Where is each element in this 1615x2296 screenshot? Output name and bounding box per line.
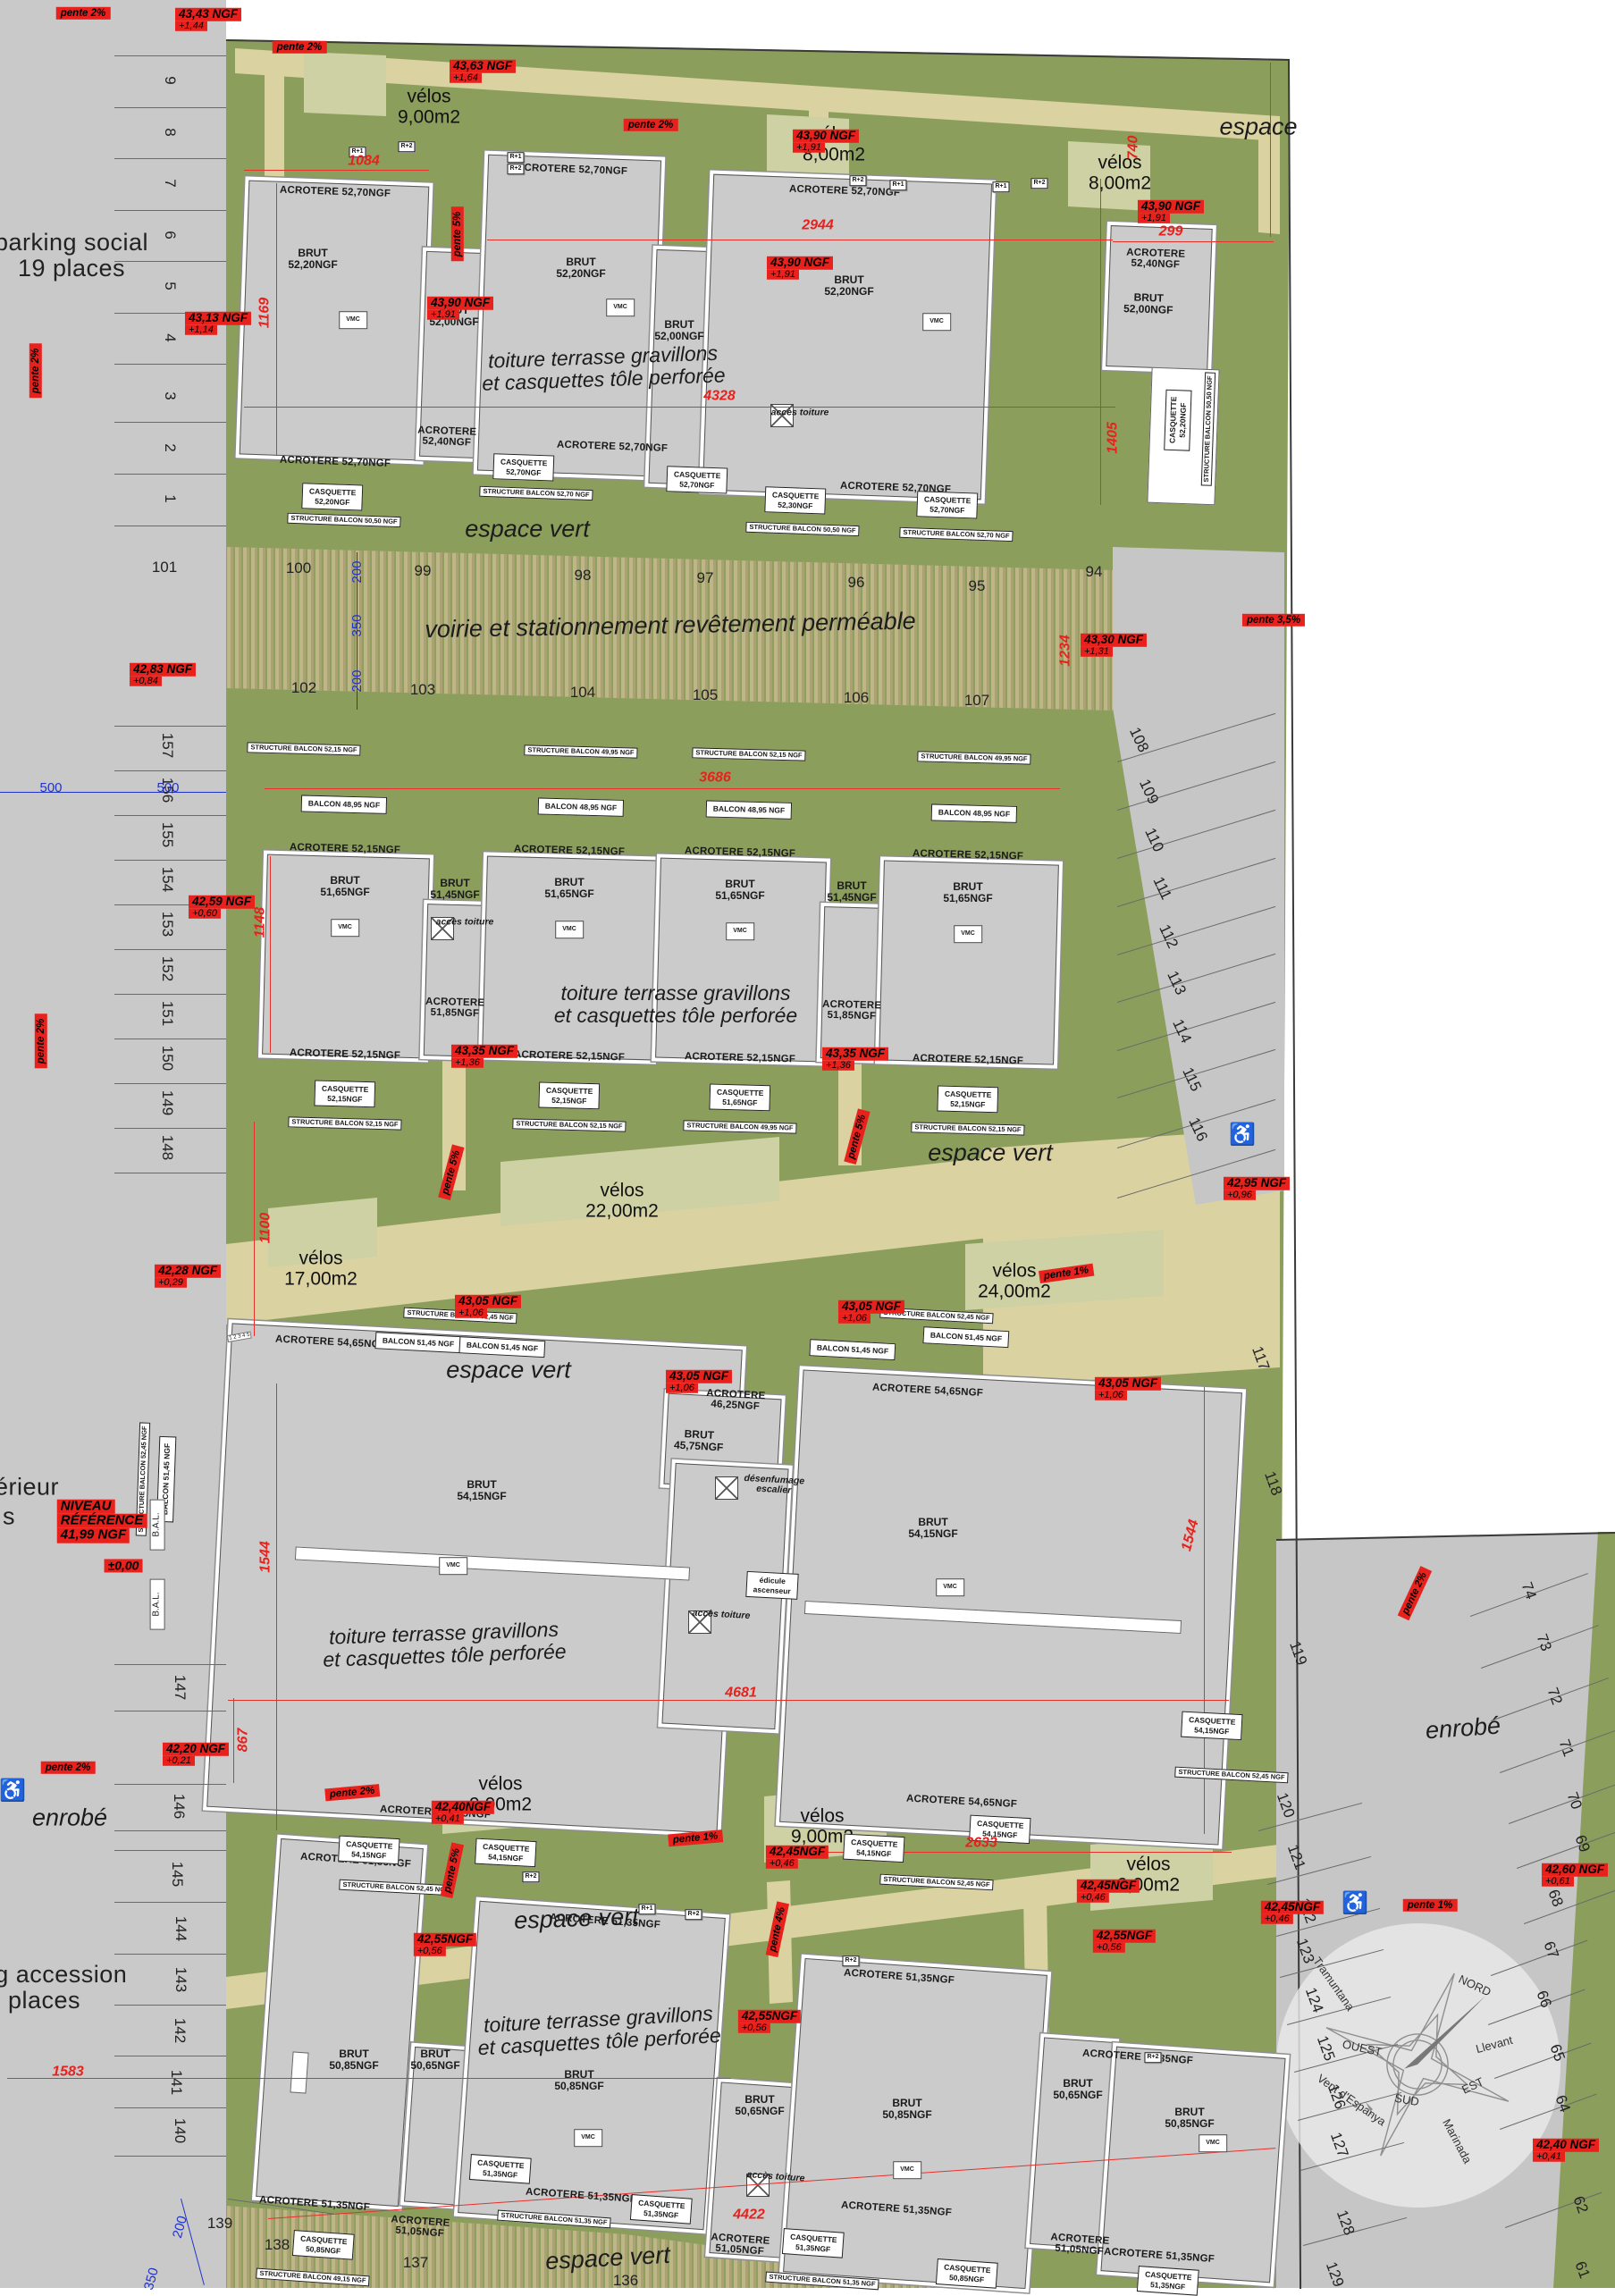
red-dimension-line	[254, 1122, 255, 1336]
parking-stall-number: 142	[172, 2018, 188, 2043]
blue-dimension-500: 500	[156, 781, 179, 795]
elevation-flag-42-40ngf: 42,40NGF+0,41	[432, 1801, 494, 1824]
parking-stall-number: 98	[575, 568, 592, 584]
brut-brut-54-15ngf: BRUT54,15NGF	[457, 1479, 506, 1502]
elevation-flag-42-45ngf: 42,45NGF+0,46	[766, 1846, 829, 1869]
wheelchair-icon: ♿	[1342, 1892, 1368, 1915]
parking-stall-number: 152	[159, 956, 175, 981]
slope-label: pente 2%	[273, 41, 327, 54]
parking-stall-number: 5	[162, 282, 178, 290]
red-dimension-line	[487, 240, 1113, 240]
red-dimension-line	[270, 856, 271, 1053]
stall-divider-line	[114, 815, 226, 816]
stall-divider-line	[114, 2005, 226, 2006]
parking-stall-number: 144	[172, 1916, 189, 1941]
wheelchair-icon: ♿	[0, 1779, 26, 1803]
elevation-flag-42-40-ngf: 42,40 NGF+0,41	[1533, 2139, 1599, 2162]
velo-v-los-8-00m2: vélos8,00m2	[1089, 153, 1151, 193]
parking-stall-number: 104	[570, 685, 595, 701]
brut-brut-54-15ngf: BRUT54,15NGF	[908, 1517, 957, 1540]
blue-dimension-200: 200	[350, 669, 365, 692]
parking-stall-number: 7	[162, 179, 178, 187]
building	[702, 174, 992, 500]
building	[1030, 2037, 1115, 2249]
elevation-flag-42-55ngf: 42,55NGF+0,56	[414, 1933, 476, 1956]
red-dimension-line	[276, 183, 277, 456]
stall-divider-line	[114, 364, 226, 365]
parking-stall-number: 148	[159, 1135, 175, 1160]
elevation-flag-43-35-ngf: 43,35 NGF+1,36	[451, 1045, 517, 1068]
badge-r-2: R+2	[522, 1871, 539, 1882]
red-dimension-line	[265, 788, 1060, 789]
box-casquette-52-20ngf: CASQUETTE52,20NGF	[1164, 389, 1192, 450]
blue-dimension-200: 200	[350, 560, 365, 583]
box-casquette-52-15ngf: CASQUETTE52,15NGF	[937, 1085, 998, 1113]
brut-brut-50-85ngf: BRUT50,85NGF	[554, 2069, 603, 2092]
it-espace-vert: espace vert	[446, 1357, 571, 1383]
slope-label: pente 2%	[624, 119, 678, 131]
toit-toiture-terrasse-gravillons-: toiture terrasse gravillonset casquettes…	[554, 982, 797, 1027]
brut-brut-51-45ngf: BRUT51,45NGF	[430, 878, 479, 901]
big-parking-social-19-places: parking social19 places	[0, 230, 148, 282]
red-dimension-1234: 1234	[1057, 635, 1072, 667]
vmc-vmc: VMC	[439, 1557, 467, 1575]
red-dimension-line	[1113, 241, 1274, 242]
parking-stall-number: 94	[1086, 564, 1103, 580]
stall-divider-line	[114, 526, 226, 526]
stall-divider-line	[114, 1784, 226, 1785]
plan-canvas: parking social19 placesparking accession…	[0, 0, 1615, 2288]
red-dimension-line	[1270, 63, 1271, 237]
acro-acrotere-51-05ngf: ACROTERE51,05NGF	[1049, 2232, 1110, 2258]
building	[820, 906, 885, 1060]
box-casquette-54-15ngf: CASQUETTE54,15NGF	[338, 1836, 400, 1865]
stall-divider-line	[114, 422, 226, 423]
brut-brut-50-65ngf: BRUT50,65NGF	[410, 2048, 459, 2072]
brut-brut-50-65ngf: BRUT50,65NGF	[1053, 2078, 1102, 2101]
vmc-vmc: VMC	[606, 299, 635, 316]
elevation-flag-43-90-ngf: 43,90 NGF+1,91	[1138, 200, 1204, 223]
slope-label: pente 1%	[1403, 1899, 1458, 1912]
site-plan-screenshot: { "plan": {"type": "architectural site p…	[0, 0, 1615, 2288]
parking-stall-number: 147	[172, 1675, 188, 1700]
acro-acrotere-52-40ngf: ACROTERE52,40NGF	[417, 425, 477, 449]
box-casquette-52-30ngf: CASQUETTE52,30NGF	[764, 486, 826, 515]
box-casquette-54-15ngf: CASQUETTE54,15NGF	[1181, 1711, 1243, 1741]
box-balcon-48-95-ngf: BALCON 48,95 NGF	[538, 797, 625, 816]
badge-r-2: R+2	[398, 141, 415, 152]
badge-r-2: R+2	[849, 175, 866, 186]
parking-stall-number: 136	[613, 2273, 638, 2289]
brut-brut-50-65ngf: BRUT50,65NGF	[735, 2094, 784, 2117]
parking-stall-number: 140	[172, 2118, 188, 2143]
brut-brut-51-65ngf: BRUT51,65NGF	[544, 877, 593, 900]
vmc-vmc: VMC	[574, 2129, 602, 2147]
badge-r-2: R+2	[842, 1955, 859, 1966]
red-dimension-line	[7, 2078, 731, 2079]
parking-stall-number: 2	[162, 443, 178, 451]
stall-divider-line	[114, 770, 226, 771]
brut-brut-52-20ngf: BRUT52,20NGF	[556, 257, 605, 280]
stall-divider-line	[114, 1711, 226, 1711]
parking-stall-number: 102	[291, 680, 316, 696]
badge-r-1: R+1	[992, 181, 1009, 192]
red-dimension-line	[1100, 179, 1101, 505]
badge-r-1: R+1	[507, 152, 524, 163]
sm-acc-s-toiture: accès toiture	[436, 917, 494, 927]
box-casquette-52-70ngf: CASQUETTE52,70NGF	[666, 466, 728, 494]
box-casquette-52-70ngf: CASQUETTE52,70NGF	[492, 453, 554, 482]
bal-b-a-l: B.A.L.	[150, 1499, 165, 1550]
red-dimension-1405: 1405	[1105, 422, 1120, 454]
big-parking-accession-35-places: parking accession35 places	[0, 1962, 127, 2014]
parking-stall-number: 153	[159, 912, 175, 937]
vmc-vmc: VMC	[893, 2161, 921, 2179]
elevation-flag-42-83-ngf: 42,83 NGF+0,84	[130, 663, 196, 686]
stall-divider-line	[114, 860, 226, 861]
parking-stall-number: 1	[162, 494, 178, 502]
brut-brut-51-65ngf: BRUT51,65NGF	[715, 879, 764, 902]
parking-stall-number: 9	[162, 76, 178, 84]
slope-label: pente 2%	[29, 344, 42, 399]
elevation-flag-42-55ngf: 42,55NGF+0,56	[738, 2010, 801, 2033]
sm-d-senfumage-escalier: désenfumageescalier	[744, 1474, 805, 1497]
box-casquette-51-35ngf: CASQUETTE51,35NGF	[782, 2228, 845, 2258]
red-dimension-2944: 2944	[802, 217, 834, 232]
parking-stall-number: 103	[410, 682, 435, 698]
stall-divider-line	[114, 474, 226, 475]
stall-divider-line	[114, 1039, 226, 1039]
box-casquette-50-85ngf: CASQUETTE50,85NGF	[936, 2258, 998, 2289]
parking-stall-number: 95	[969, 578, 986, 594]
parking-stall-number: 99	[415, 563, 432, 579]
elevation-flag-43-90-ngf: 43,90 NGF+1,91	[427, 297, 493, 320]
roof-hatch-icon	[715, 1476, 738, 1500]
parking-stall-number: 3	[162, 391, 178, 399]
parking-stall-number: 105	[693, 687, 718, 703]
red-dimension-line	[1204, 1387, 1205, 1834]
acro-acrotere-52-40ngf: ACROTERE52,40NGF	[1126, 247, 1186, 271]
building	[256, 1838, 424, 2207]
badge-r-2: R+2	[1144, 2052, 1161, 2063]
parking-stall-number: 143	[172, 1967, 189, 1992]
stall-divider-line	[114, 1128, 226, 1129]
stall-divider-line	[114, 994, 226, 995]
stall-divider-line	[114, 2156, 226, 2157]
parking-stall-number: 97	[697, 570, 714, 586]
vmc-vmc: VMC	[555, 921, 584, 938]
badge-r-2: R+2	[507, 164, 524, 174]
red-dimension-4422: 4422	[733, 2207, 765, 2222]
parking-stall-number: 96	[848, 575, 865, 591]
velo-v-los-22-00m2: vélos22,00m2	[585, 1181, 659, 1221]
velo-v-los-9-00m2: vélos9,00m2	[398, 87, 460, 127]
parking-stall-number: 154	[159, 867, 175, 892]
box-balcon-48-95-ngf: BALCON 48,95 NGF	[706, 800, 793, 819]
parking-stall-number: 139	[207, 2216, 232, 2232]
box-casquette-51-35ngf: CASQUETTE51,35NGF	[469, 2154, 532, 2184]
blue-dimension-350: 350	[350, 614, 365, 636]
stall-divider-line	[114, 55, 226, 56]
badge-r-1: R+1	[889, 180, 906, 190]
red-dimension-2633: 2633	[965, 1835, 997, 1850]
red-dimension-1169: 1169	[257, 298, 272, 328]
it-espace: espace	[1219, 114, 1297, 139]
parking-stall-number: 157	[159, 733, 175, 758]
badge-r-2: R+2	[685, 1909, 702, 1920]
brut-brut-52-00ngf: BRUT52,00NGF	[654, 319, 703, 342]
brut-brut-51-65ngf: BRUT51,65NGF	[320, 875, 369, 898]
acro-acrotere-51-05ngf: ACROTERE51,05NGF	[710, 2232, 770, 2258]
stall-divider-line	[114, 1173, 226, 1173]
parking-stall-number: 4	[162, 333, 178, 341]
vmc-vmc: VMC	[922, 313, 951, 331]
stall-divider-line	[114, 1083, 226, 1084]
box-casquette-54-15ngf: CASQUETTE54,15NGF	[843, 1834, 905, 1863]
parking-stall-number: 137	[403, 2255, 428, 2271]
elevation-flag-42-95-ngf: 42,95 NGF+0,96	[1224, 1177, 1290, 1200]
elevation-flag-43-05-ngf: 43,05 NGF+1,06	[666, 1370, 732, 1393]
red-dimension-740: 740	[1125, 136, 1140, 160]
red-dimension-line	[244, 170, 429, 171]
elevation-flag-42-45ngf: 42,45NGF+0,46	[1261, 1901, 1324, 1924]
box-casquette-52-15ngf: CASQUETTE52,15NGF	[314, 1080, 375, 1107]
parking-stall-number: 6	[162, 231, 178, 239]
box-casquette-54-15ngf: CASQUETTE54,15NGF	[475, 1838, 537, 1868]
elevation-flag-43-90-ngf: 43,90 NGF+1,91	[767, 257, 833, 280]
badge-r-2: R+2	[1030, 178, 1047, 189]
vmc-vmc: VMC	[726, 922, 754, 940]
box-casquette-51-35ngf: CASQUETTE51,35NGF	[1137, 2266, 1199, 2296]
parking-stall-number: 8	[162, 128, 178, 136]
box-dicule-ascenseur: édiculeascenseur	[745, 1571, 799, 1600]
elevation-flag-42-45ngf: 42,45NGF+0,46	[1077, 1880, 1140, 1903]
elevation-flag-43-05-ngf: 43,05 NGF+1,06	[838, 1300, 904, 1324]
brut-brut-51-65ngf: BRUT51,65NGF	[943, 881, 992, 904]
elevation-flag-42-60-ngf: 42,60 NGF+0,61	[1542, 1863, 1608, 1887]
box-casquette-51-35ngf: CASQUETTE51,35NGF	[630, 2194, 693, 2225]
stall-divider-line	[114, 2056, 226, 2056]
stall-divider-line	[114, 210, 226, 211]
elevation-flag-43-13-ngf: 43,13 NGF+1,14	[185, 312, 251, 335]
parking-stall-number: 145	[169, 1862, 185, 1887]
slope-label: pente 2%	[41, 1762, 96, 1774]
parking-stall-number: 138	[265, 2237, 290, 2253]
reference-zero-flag: ±0,00	[105, 1559, 143, 1572]
toit-toiture-terrasse-gravillons-: toiture terrasse gravillonset casquettes…	[322, 1618, 567, 1670]
red-dimension-1544: 1544	[257, 1541, 273, 1573]
big-rieur: érieur	[0, 1474, 59, 1500]
red-dimension-1084: 1084	[348, 153, 380, 168]
vmc-vmc: VMC	[936, 1578, 964, 1596]
acro-acrotere-51-85ngf: ACROTERE51,85NGF	[822, 999, 882, 1023]
box-balcon-48-95-ngf: BALCON 48,95 NGF	[931, 803, 1018, 822]
box-casquette-52-15ngf: CASQUETTE52,15NGF	[538, 1081, 600, 1109]
sm-acc-s-toiture: accès toiture	[771, 408, 829, 417]
vmc-vmc: VMC	[339, 311, 367, 329]
reference-level-flag: NIVEAURÉFÉRENCE41,99 NGF	[57, 1500, 147, 1543]
big-s: s	[3, 1503, 15, 1529]
elevation-flag-42-28-ngf: 42,28 NGF+0,29	[155, 1265, 221, 1288]
velo-v-los-17-00m2: vélos17,00m2	[284, 1249, 357, 1289]
parking-stall-number: 100	[286, 560, 311, 576]
stall-divider-line	[114, 949, 226, 950]
stall-divider-line	[114, 726, 226, 727]
roof-duct	[290, 2051, 308, 2093]
stall-divider-line	[114, 1664, 226, 1665]
red-dimension-3686: 3686	[699, 770, 731, 785]
red-dimension-4328: 4328	[703, 388, 736, 403]
stall-divider-line	[114, 1850, 226, 1851]
it-espace-vert: espace vert	[928, 1140, 1053, 1165]
vmc-vmc: VMC	[1199, 2134, 1227, 2152]
brut-brut-52-20ngf: BRUT52,20NGF	[288, 248, 337, 271]
parking-stall-number: 146	[171, 1794, 187, 1819]
red-dimension-1100: 1100	[257, 1213, 273, 1243]
red-dimension-1148: 1148	[252, 907, 267, 938]
it-enrob: enrobé	[1425, 1713, 1501, 1745]
box-casquette-51-65ngf: CASQUETTE51,65NGF	[709, 1083, 770, 1111]
brut-brut-52-00ngf: BRUT52,00NGF	[1123, 291, 1173, 316]
elevation-flag-43-30-ngf: 43,30 NGF+1,31	[1081, 634, 1147, 657]
brut-brut-51-45ngf: BRUT51,45NGF	[827, 880, 876, 904]
slope-label: pente 5%	[451, 207, 464, 262]
parking-stall-number: 151	[159, 1001, 175, 1026]
elevation-flag-43-90-ngf: 43,90 NGF+1,91	[793, 130, 859, 153]
elevation-flag-42-59-ngf: 42,59 NGF+0,60	[189, 896, 255, 919]
elevation-flag-43-43-ngf: 43,43 NGF+1,44	[175, 8, 241, 31]
badge-r-1: R+1	[638, 1904, 655, 1914]
red-dimension-1583: 1583	[52, 2064, 84, 2079]
wheelchair-icon: ♿	[1229, 1123, 1256, 1147]
brut-brut-45-75ngf: BRUT45,75NGF	[674, 1428, 725, 1454]
bal-b-a-l: B.A.L.	[150, 1578, 165, 1629]
elevation-flag-43-63-ngf: 43,63 NGF+1,64	[450, 60, 516, 83]
slope-label: pente 2%	[35, 1014, 47, 1069]
elevation-flag-42-55ngf: 42,55NGF+0,56	[1093, 1930, 1156, 1953]
it-espace-vert: espace vert	[465, 516, 590, 542]
parking-stall-number: 101	[152, 559, 177, 576]
stall-divider-line	[114, 1954, 226, 1955]
elevation-flag-43-05-ngf: 43,05 NGF+1,06	[1095, 1377, 1161, 1400]
parking-stall-number: 149	[159, 1090, 175, 1115]
toit-toiture-terrasse-gravillons-: toiture terrasse gravillonset casquettes…	[481, 341, 726, 394]
box-casquette-52-70ngf: CASQUETTE52,70NGF	[916, 491, 978, 519]
red-dimension-299: 299	[1159, 223, 1183, 239]
elevation-flag-42-20-ngf: 42,20 NGF+0,21	[163, 1743, 229, 1766]
parking-stall-number: 150	[159, 1046, 175, 1071]
stall-divider-line	[114, 1902, 226, 1903]
vmc-vmc: VMC	[331, 919, 359, 937]
stall-divider-line	[114, 158, 226, 159]
brut-brut-50-85ngf: BRUT50,85NGF	[882, 2098, 931, 2121]
blue-dimension-line	[0, 792, 226, 793]
parking-stall-number: 107	[964, 693, 989, 709]
acro-acrotere-51-05ngf: ACROTERE51,05NGF	[390, 2214, 450, 2240]
red-dimension-line	[244, 407, 1115, 408]
red-dimension-line	[276, 1383, 277, 1830]
box-casquette-50-85ngf: CASQUETTE50,85NGF	[292, 2230, 355, 2260]
stall-divider-line	[114, 1830, 226, 1831]
stall-divider-line	[114, 107, 226, 108]
elevation-flag-43-35-ngf: 43,35 NGF+1,36	[822, 1047, 888, 1071]
box-balcon-48-95-ngf: BALCON 48,95 NGF	[301, 795, 388, 813]
stall-divider-line	[114, 2107, 226, 2108]
vmc-vmc: VMC	[954, 925, 982, 943]
parking-stall-number: 141	[168, 2070, 184, 2095]
parking-stall-number: 155	[159, 822, 175, 847]
parking-stall-number: 106	[844, 690, 869, 706]
box-casquette-52-20ngf: CASQUETTE52,20NGF	[301, 483, 363, 511]
brut-brut-50-85ngf: BRUT50,85NGF	[1165, 2107, 1214, 2130]
brut-brut-50-85ngf: BRUT50,85NGF	[329, 2048, 378, 2072]
red-dimension-line	[233, 1698, 234, 1783]
it-enrob: enrobé	[32, 1804, 107, 1830]
acro-acrotere-51-85ngf: ACROTERE51,85NGF	[425, 997, 485, 1021]
red-dimension-4681: 4681	[725, 1685, 757, 1700]
blue-dimension-500: 500	[39, 781, 62, 795]
red-dimension-867: 867	[235, 1728, 250, 1753]
slope-label: pente 3,5%	[1242, 614, 1305, 627]
elevation-flag-43-05-ngf: 43,05 NGF+1,06	[455, 1295, 521, 1318]
slope-label: pente 2%	[56, 7, 111, 20]
